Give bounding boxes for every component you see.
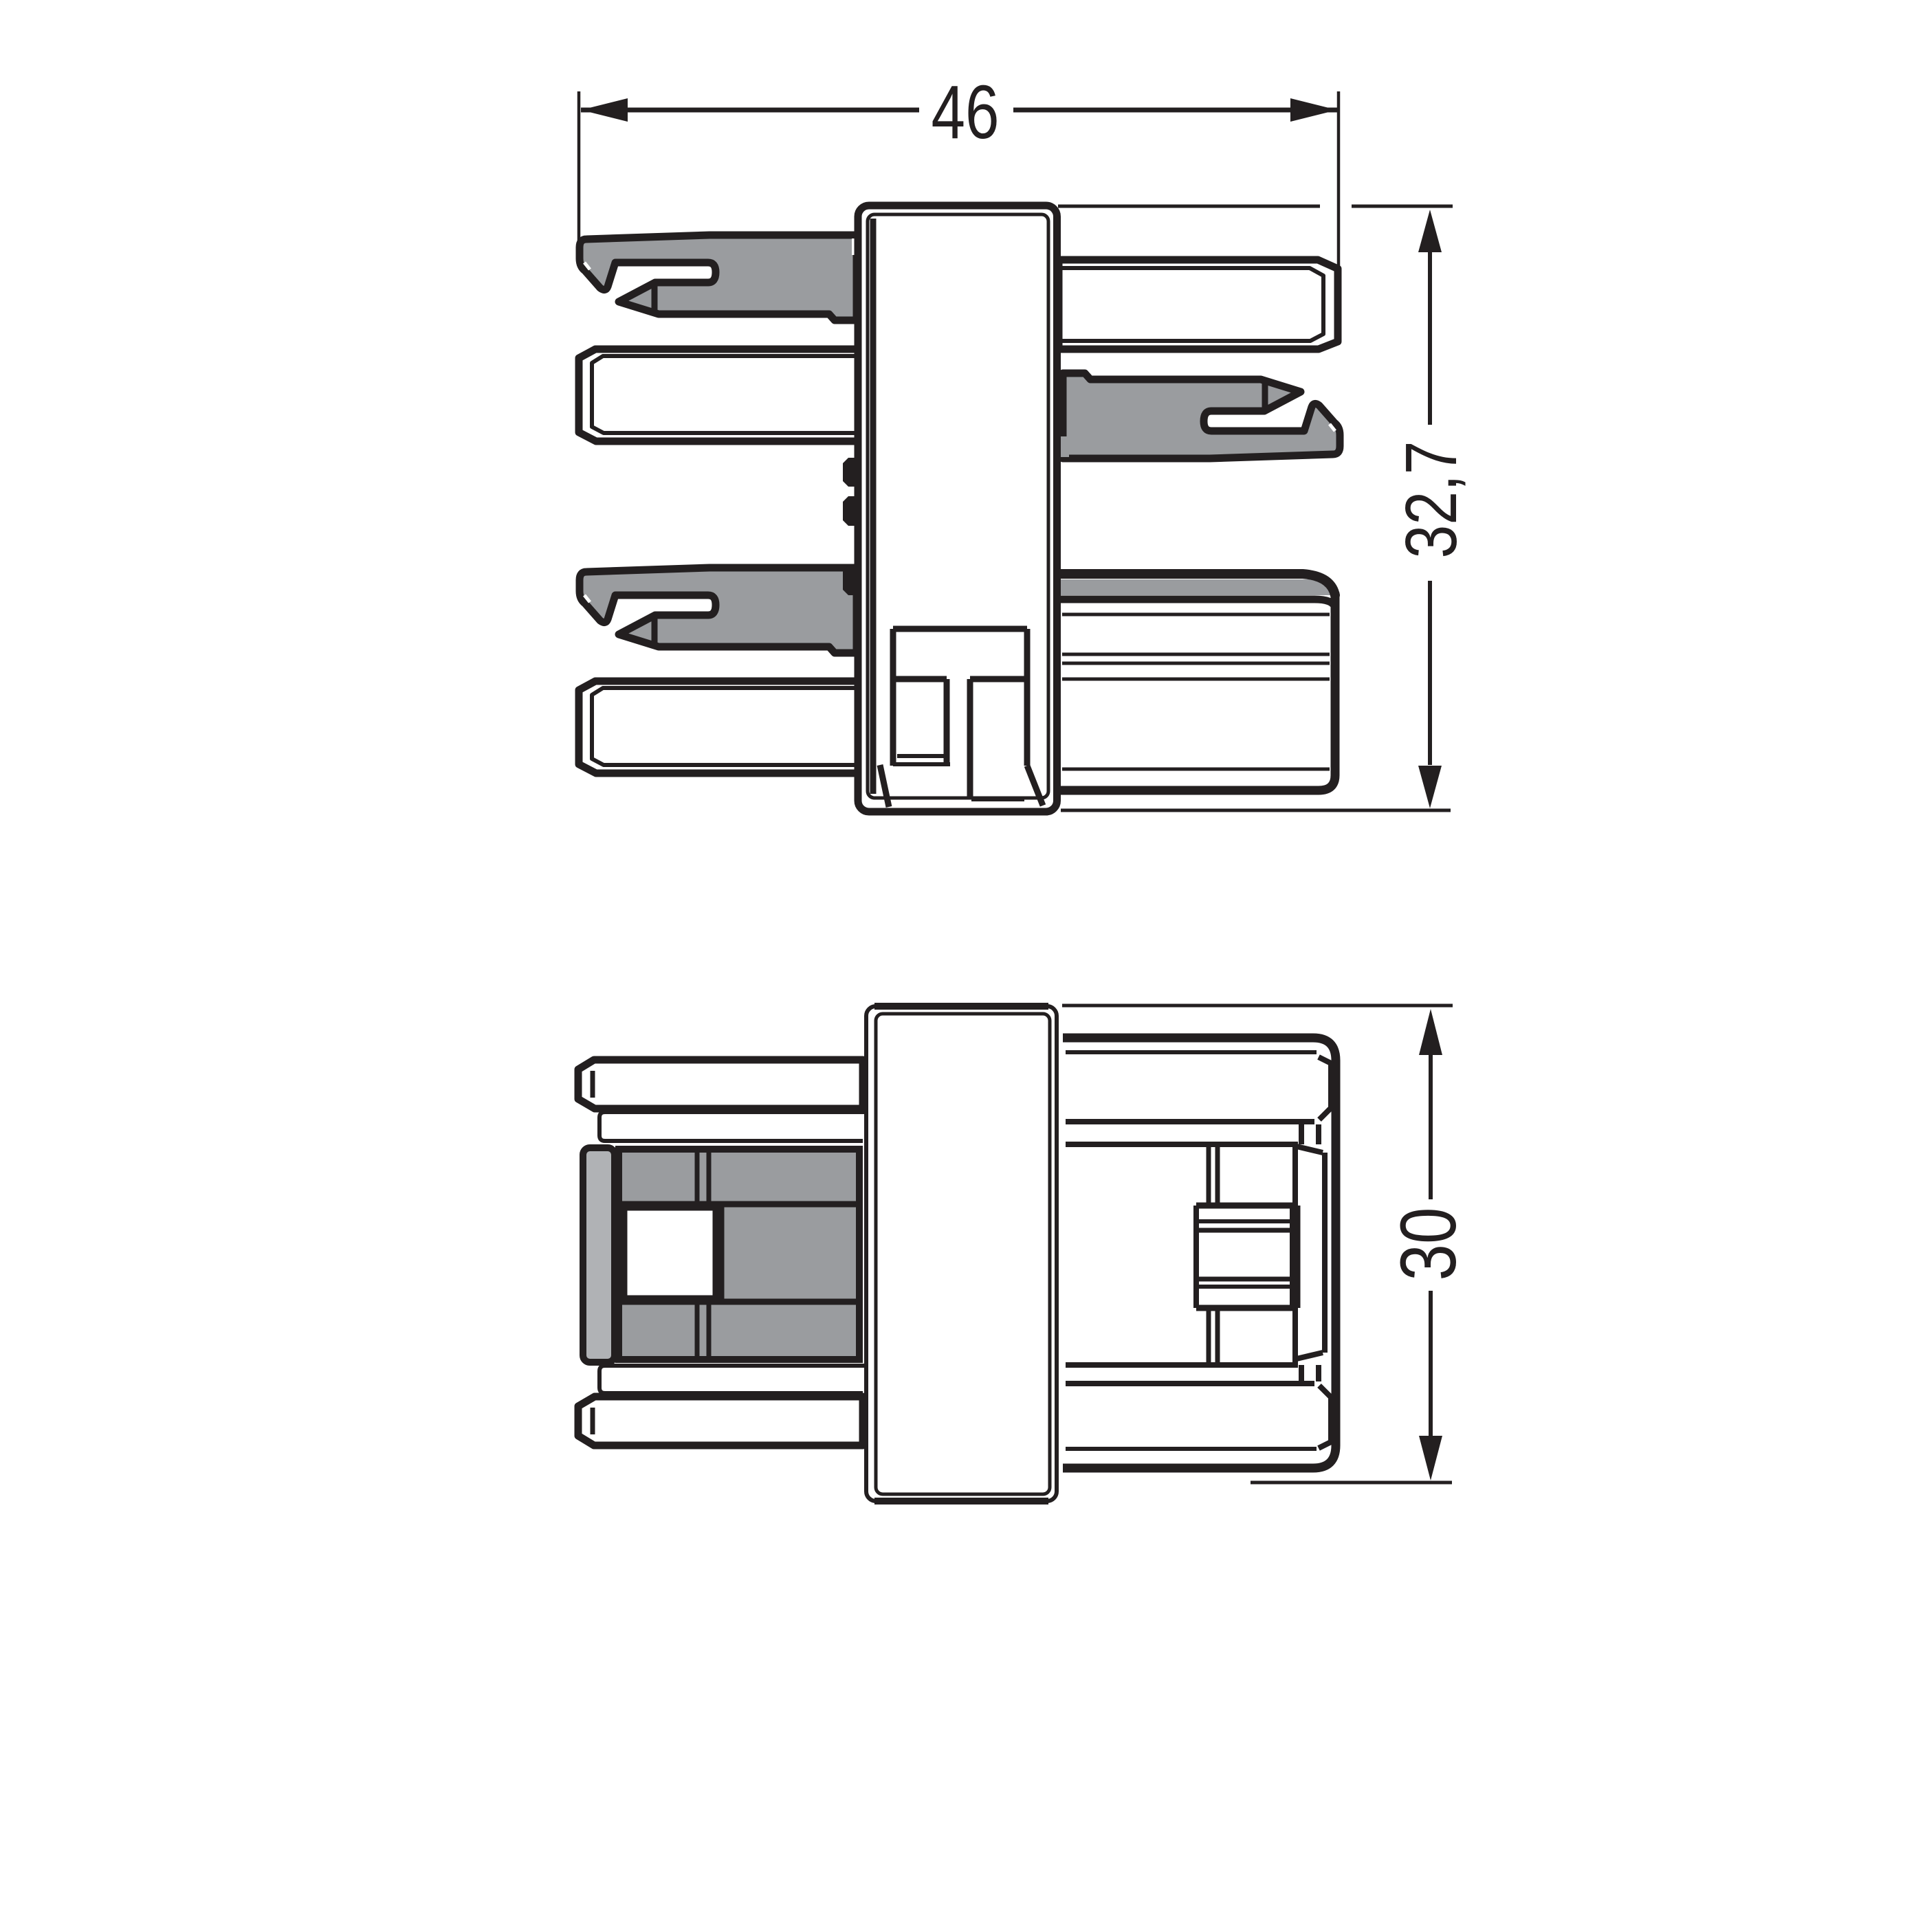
svg-text:46: 46 <box>932 70 1000 155</box>
svg-text:32,7: 32,7 <box>1391 441 1472 559</box>
svg-text:30: 30 <box>1385 1208 1473 1281</box>
